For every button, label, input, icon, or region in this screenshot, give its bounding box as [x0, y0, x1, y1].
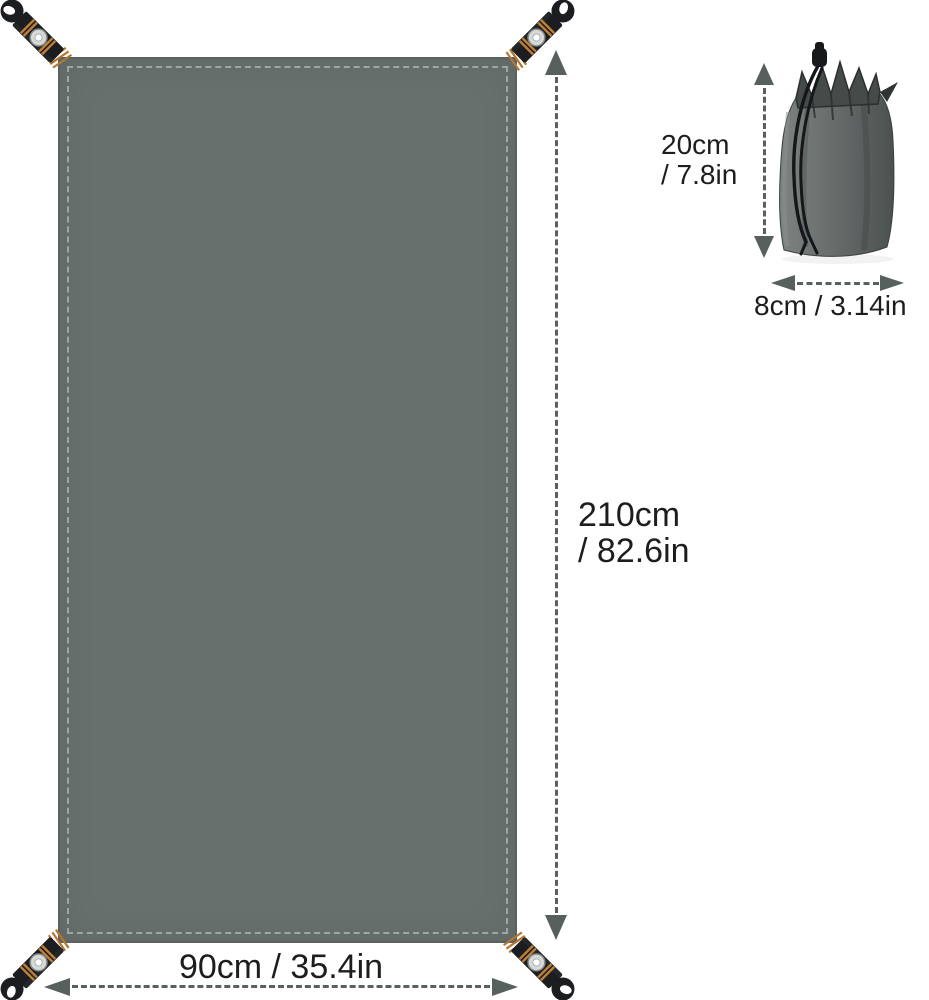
bag-height-value-in: / 7.8in — [661, 160, 737, 190]
tarp-height-label: 210cm / 82.6in — [578, 497, 690, 569]
bag-height-arrow-up-icon — [754, 63, 774, 85]
tarp-width-arrow-left-icon — [44, 978, 70, 996]
bag-height-arrow-down-icon — [754, 236, 774, 258]
bag-body — [780, 92, 894, 256]
bag-height-label: 20cm / 7.8in — [661, 130, 737, 190]
bag-width-dashed-line — [797, 282, 879, 285]
cord-toggle — [812, 48, 827, 67]
bag-height-value-cm: 20cm — [661, 130, 737, 160]
tarp-width-label: 90cm / 35.4in — [44, 949, 518, 985]
storage-bag — [768, 42, 912, 270]
bag-width-arrow-left-icon — [771, 275, 795, 291]
bag-width-arrow-right-icon — [880, 275, 904, 291]
tarp-height-value-in: / 82.6in — [578, 533, 690, 569]
bag-width-label: 8cm / 3.14in — [754, 291, 907, 321]
tarp-height-arrow-up-icon — [545, 50, 567, 75]
tarp-width-dashed-line — [72, 985, 490, 988]
tarp-width-arrow-right-icon — [492, 978, 518, 996]
corner-strap-top-right-icon — [496, 0, 587, 78]
tarp-stitch-line — [67, 66, 508, 934]
tarp — [58, 57, 517, 943]
bag-height-dashed-line — [763, 88, 766, 234]
tarp-height-value-cm: 210cm — [578, 497, 690, 533]
tarp-height-arrow-down-icon — [545, 915, 567, 940]
product-dimension-diagram: 210cm / 82.6in 90cm / 35.4in — [0, 0, 929, 1000]
tarp-height-dashed-line — [555, 77, 558, 913]
